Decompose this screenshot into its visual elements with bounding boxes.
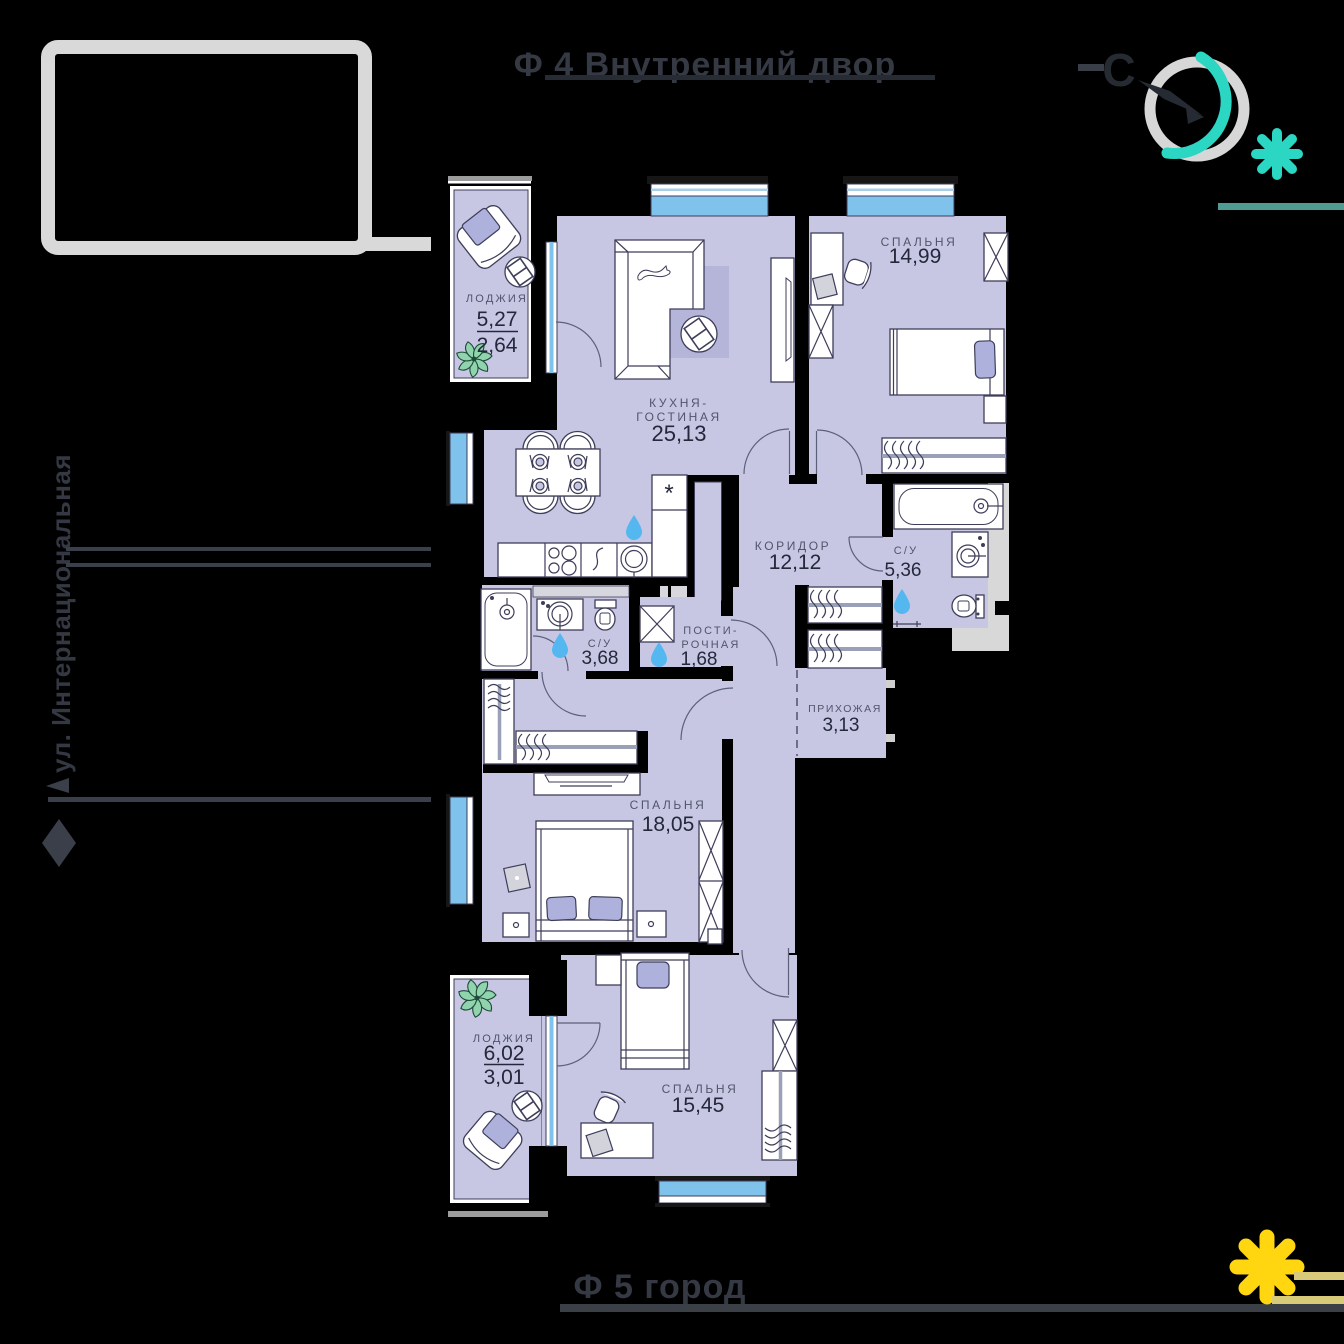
svg-text:18,05: 18,05	[642, 813, 695, 836]
svg-text:5,36: 5,36	[885, 560, 922, 581]
svg-text:3,01: 3,01	[484, 1066, 525, 1089]
svg-text:3,13: 3,13	[823, 715, 860, 736]
svg-text:ул. Интернациональная: ул. Интернациональная	[46, 454, 76, 773]
svg-text:С/У: С/У	[894, 545, 919, 557]
svg-text:ЛОДЖИЯ: ЛОДЖИЯ	[466, 293, 528, 305]
svg-text:КУХНЯ-: КУХНЯ-	[649, 396, 709, 410]
svg-text:С: С	[1102, 44, 1135, 96]
svg-text:*: *	[664, 480, 673, 507]
svg-text:14,99: 14,99	[889, 245, 942, 268]
svg-text:2,64: 2,64	[477, 334, 518, 357]
svg-text:6,02: 6,02	[484, 1042, 525, 1065]
svg-text:3,68: 3,68	[582, 648, 619, 669]
svg-text:ПРИХОЖАЯ: ПРИХОЖАЯ	[808, 703, 882, 715]
svg-text:Ф 5 город: Ф 5 город	[574, 1268, 747, 1306]
svg-text:25,13: 25,13	[651, 421, 706, 446]
svg-text:СПАЛЬНЯ: СПАЛЬНЯ	[630, 798, 707, 812]
svg-text:15,45: 15,45	[672, 1094, 725, 1117]
svg-text:ПОСТИ-: ПОСТИ-	[683, 625, 739, 637]
svg-text:1,68: 1,68	[681, 649, 718, 670]
svg-text:5,27: 5,27	[477, 308, 518, 331]
svg-text:12,12: 12,12	[769, 551, 822, 574]
